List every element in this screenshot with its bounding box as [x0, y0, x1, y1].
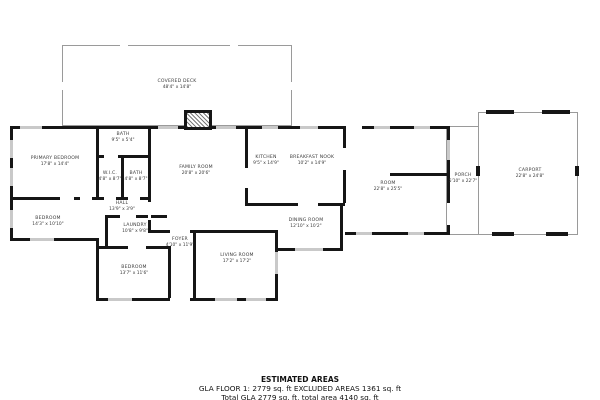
room-dims: 12'10" x 10'2" — [289, 224, 324, 230]
floor-plan-canvas: COVERED DECK 48'4" x 14'8" PRIMARY BEDRO… — [0, 0, 600, 400]
door-gap — [170, 298, 190, 301]
room-label-covered-deck: COVERED DECK 48'4" x 14'8" — [158, 79, 197, 91]
door-gap — [298, 203, 318, 206]
room-dims: 9'5" x 5'4" — [111, 138, 134, 144]
carport-post — [542, 110, 570, 114]
room-label-room: ROOM 22'8" x 25'5" — [374, 181, 403, 193]
room-dims: 20'8" x 20'6" — [179, 171, 212, 177]
door-gap — [120, 215, 136, 218]
carport-post — [575, 166, 579, 176]
door-gap — [343, 148, 346, 170]
wall-segment — [340, 203, 343, 251]
room-dims: 4'10" x 11'9" — [166, 243, 195, 249]
wall-segment — [10, 238, 99, 241]
window-segment — [356, 232, 372, 235]
window-segment — [295, 248, 323, 251]
door-gap — [60, 197, 74, 200]
window-segment — [447, 140, 450, 160]
room-label-bedroom-lower: BEDROOM 13'7" x 11'6" — [120, 265, 149, 277]
deck-rail-gap — [290, 82, 293, 90]
room-label-wic: W.I.C. 4'8" x 8'7" — [98, 171, 121, 183]
deck-rail-gap — [120, 44, 128, 47]
wall-segment — [105, 215, 167, 218]
carport-post — [546, 232, 568, 236]
room-dims: 22'8" x 25'5" — [374, 187, 403, 193]
deck-rail-gap — [230, 44, 238, 47]
room-label-kitchen: KITCHEN 9'5" x 14'9" — [253, 155, 279, 167]
room-label-hall: HALL 13'9" x 3'9" — [109, 201, 135, 213]
total-gla-line: Total GLA 2779 sq. ft, total area 4140 s… — [0, 394, 600, 400]
room-dims: 4'8" x 8'7" — [124, 177, 147, 183]
wall-segment — [168, 246, 171, 301]
room-dims: 10'8" x 9'8" — [122, 229, 148, 235]
window-segment — [108, 298, 132, 301]
room-label-living-room: LIVING ROOM 17'2" x 17'2" — [220, 253, 253, 265]
room-label-family-room: FAMILY ROOM 20'8" x 20'6" — [179, 165, 212, 177]
wall-segment — [96, 126, 99, 200]
door-gap — [447, 203, 450, 225]
window-segment — [275, 252, 278, 274]
door-gap — [148, 202, 151, 220]
chimney-hatch — [184, 110, 212, 130]
room-dims: 5'10" x 22'7" — [449, 179, 478, 185]
room-label-bath-2: BATH 4'8" x 8'7" — [124, 171, 147, 183]
room-dims: 4'8" x 8'7" — [98, 177, 121, 183]
window-segment — [414, 126, 430, 129]
room-dims: 48'4" x 14'8" — [158, 85, 197, 91]
door-gap — [346, 126, 362, 129]
door-gap — [128, 197, 140, 200]
window-segment — [30, 238, 54, 241]
room-label-foyer: FOYER 4'10" x 11'9" — [166, 237, 195, 249]
wall-segment — [245, 203, 345, 206]
room-label-laundry: LAUNDRY 10'8" x 9'8" — [122, 223, 148, 235]
window-segment — [215, 298, 237, 301]
window-segment — [374, 126, 390, 129]
room-dims: 9'5" x 14'9" — [253, 161, 279, 167]
deck-rail-gap — [61, 82, 64, 90]
wall-segment — [96, 238, 99, 301]
room-label-breakfast-nook: BREAKFAST NOOK 10'2" x 14'9" — [290, 155, 334, 167]
window-segment — [246, 298, 266, 301]
wall-segment — [245, 126, 248, 203]
door-gap — [128, 246, 146, 249]
room-label-carport: CARPORT 22'8" x 24'8" — [516, 168, 545, 180]
wall-segment — [390, 173, 450, 176]
carport-post — [486, 110, 514, 114]
room-label-primary-bedroom: PRIMARY BEDROOM 17'8" x 14'4" — [31, 156, 80, 168]
room-dims: 10'2" x 14'9" — [290, 161, 334, 167]
window-segment — [262, 126, 278, 129]
carport-post — [492, 232, 514, 236]
door-gap — [245, 168, 248, 188]
room-dims: 17'8" x 14'4" — [31, 162, 80, 168]
window-segment — [300, 126, 318, 129]
window-segment — [408, 232, 424, 235]
estimated-areas-summary: ESTIMATED AREAS GLA FLOOR 1: 2779 sq. ft… — [0, 375, 600, 400]
room-dims: 17'2" x 17'2" — [220, 259, 253, 265]
door-gap — [170, 230, 190, 233]
window-segment — [20, 126, 42, 129]
room-dims: 22'8" x 24'8" — [516, 174, 545, 180]
window-segment — [10, 168, 13, 186]
room-label-porch: PORCH 5'10" x 22'7" — [449, 173, 478, 185]
window-segment — [10, 210, 13, 228]
room-dims: 14'3" x 10'10" — [32, 222, 63, 228]
window-segment — [216, 126, 236, 129]
room-dims: 13'9" x 3'9" — [109, 207, 135, 213]
window-segment — [158, 126, 178, 129]
door-gap — [104, 155, 118, 158]
door-gap — [104, 197, 116, 200]
door-gap — [80, 197, 92, 200]
window-segment — [10, 140, 13, 158]
room-label-dining-room: DINING ROOM 12'10" x 10'2" — [289, 218, 324, 230]
wall-segment — [148, 230, 278, 233]
room-label-bath-top: BATH 9'5" x 5'4" — [111, 132, 134, 144]
wall-segment — [105, 215, 108, 248]
estimated-areas-title: ESTIMATED AREAS — [0, 375, 600, 384]
room-label-bedroom-left: BEDROOM 14'3" x 10'10" — [32, 216, 63, 228]
room-dims: 13'7" x 11'6" — [120, 271, 149, 277]
